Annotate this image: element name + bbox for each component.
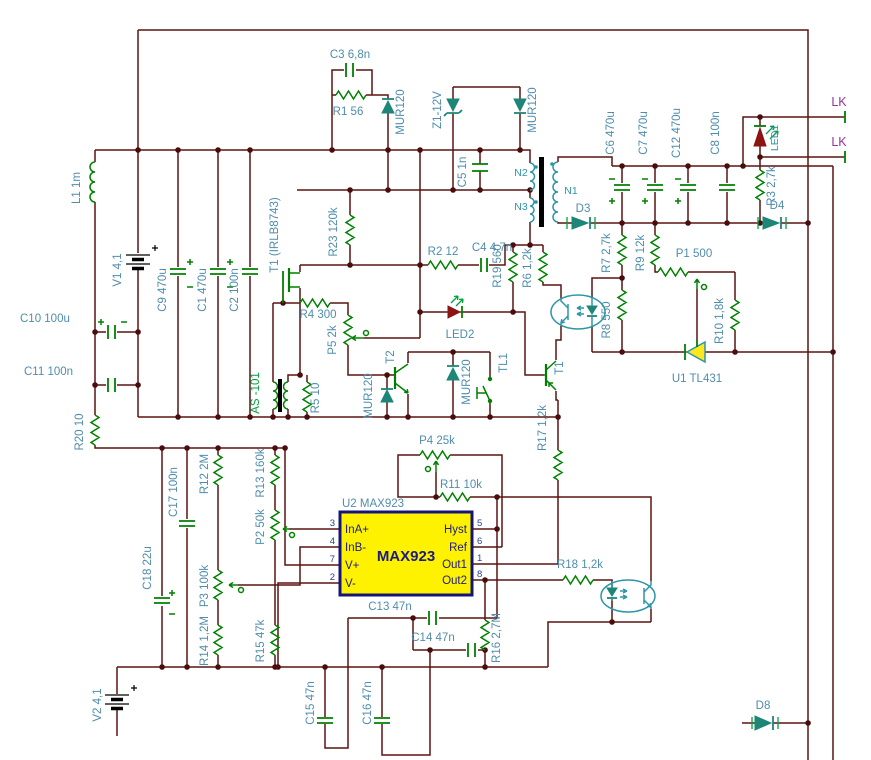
- label-r23: R23 120k: [328, 207, 340, 256]
- label-c13: C13 47n: [368, 601, 411, 613]
- pin-label-inb: InB-: [345, 542, 366, 554]
- label-c17: C17 100n: [168, 467, 180, 517]
- label-r8: R8 550: [601, 301, 613, 338]
- pin-number-8: 8: [477, 569, 482, 580]
- pin-number-4: 4: [330, 536, 335, 547]
- pin-label-hyst: Hyst: [444, 524, 468, 536]
- label-r18: R18 1,2k: [557, 559, 603, 571]
- label-r4: R4 300: [299, 309, 336, 321]
- label-p2: P2 50k: [255, 509, 267, 545]
- optocoupler-1: [551, 295, 605, 329]
- label-r20: R20 10: [74, 413, 86, 450]
- inductor-l1: [90, 162, 95, 202]
- label-c8: C8 100n: [710, 111, 722, 154]
- label-u1: U1 TL431: [672, 373, 722, 385]
- pin-label-ref: Ref: [449, 542, 468, 554]
- current-transformer-as101: [273, 379, 288, 412]
- label-c15: C15 47n: [305, 681, 317, 724]
- label-max923: MAX923: [377, 548, 435, 565]
- label-c1: C1 470u: [197, 268, 209, 311]
- label-v2: V2 4,1: [92, 688, 104, 721]
- label-led1: LED1: [769, 125, 781, 151]
- label-mur120-1: MUR120: [395, 89, 407, 134]
- as101-core: [278, 379, 282, 412]
- label-tl1: TL1: [498, 353, 510, 373]
- label-c7: C7 470u: [638, 111, 650, 154]
- diode-mur120-2: [514, 99, 526, 111]
- label-p5: P5 2k: [327, 325, 339, 355]
- diode-mur120-4: [447, 368, 459, 380]
- zener-z1: [447, 99, 459, 111]
- label-l1: L1 1m: [71, 172, 83, 204]
- label-c5: C5 1n: [457, 157, 469, 188]
- diode-mur120-1: [382, 101, 394, 113]
- label-r9: R9 12k: [635, 235, 647, 272]
- pin-number-5: 5: [477, 518, 482, 529]
- pin-number-1: 1: [477, 553, 482, 564]
- label-r2: R2 12: [428, 246, 459, 258]
- label-c11: C11 100n: [24, 366, 73, 378]
- pin-number-2: 2: [330, 572, 335, 583]
- transformer-n1-n2-n3: [530, 157, 558, 227]
- label-c14: C14 47n: [411, 632, 454, 644]
- pin-label-vplus: V+: [345, 560, 360, 572]
- label-n2: N2: [514, 167, 528, 179]
- label-d8: D8: [756, 700, 771, 712]
- label-r16: R16 2,7M: [491, 613, 503, 663]
- label-t2: T2: [385, 350, 397, 363]
- pin-label-vminus: V-: [345, 578, 356, 590]
- circuit-schematic: C3 6,8n R1 56 MUR120 Z1-12V MUR120 C5 1n…: [0, 0, 871, 760]
- pin-number-7: 7: [330, 554, 335, 565]
- label-led2: LED2: [446, 329, 475, 341]
- optocoupler-2: [601, 580, 655, 612]
- pin-number-6: 6: [477, 536, 482, 547]
- diode-d4: [763, 217, 779, 229]
- label-t1-mosfet: T1 (IRLB8743): [269, 197, 281, 273]
- label-p4: P4 25k: [419, 435, 455, 447]
- label-c18: C18 22u: [142, 546, 154, 589]
- label-as101: AS -101: [250, 372, 262, 414]
- mosfet-t1: [283, 268, 300, 303]
- pin-label-out1: Out1: [442, 559, 467, 571]
- led2: [448, 296, 463, 318]
- label-r19: R19 560: [492, 244, 504, 287]
- label-r13: R13 160k: [255, 448, 267, 497]
- label-v1: V1 4,1: [112, 253, 124, 286]
- label-c10: C10 100u: [20, 313, 70, 325]
- label-c3: C3 6,8n: [330, 49, 370, 61]
- label-r12: R12 2M: [199, 454, 211, 494]
- label-mur120-2: MUR120: [527, 87, 539, 132]
- diode-d8: [755, 716, 771, 730]
- transformer-core: [539, 157, 544, 227]
- battery-v2: [105, 685, 137, 709]
- label-n3: N3: [514, 201, 528, 213]
- label-t1-pnp: T1: [554, 361, 566, 374]
- label-r6: R6 1,2k: [522, 248, 534, 288]
- label-r11: R11 10k: [440, 479, 482, 491]
- label-c9: C9 470u: [157, 268, 169, 311]
- pin-label-out2: Out2: [442, 575, 467, 587]
- label-z1: Z1-12V: [432, 91, 444, 129]
- label-c2: C2 100n: [229, 268, 241, 311]
- label-r17: R17 1,2k: [537, 405, 549, 451]
- label-mur120-4: MUR120: [461, 359, 473, 404]
- label-r14: R14 1,2M: [199, 616, 211, 666]
- label-lk2: LK: [831, 135, 847, 149]
- pin-number-3: 3: [330, 518, 335, 529]
- label-r15: R15 47k: [255, 619, 267, 662]
- pushbutton-tl1: [477, 377, 492, 403]
- label-d3: D3: [576, 203, 591, 215]
- schematic-canvas: C3 6,8n R1 56 MUR120 Z1-12V MUR120 C5 1n…: [0, 0, 871, 760]
- label-d4: D4: [770, 200, 785, 212]
- label-n1: N1: [564, 185, 578, 197]
- label-mur120-3: MUR120: [363, 373, 375, 418]
- pin-label-ina: InA+: [345, 524, 369, 536]
- label-c16: C16 47n: [362, 681, 374, 724]
- label-r1: R1 56: [333, 106, 364, 118]
- label-u2: U2 MAX923: [342, 498, 404, 510]
- label-c6: C6 470u: [605, 111, 617, 154]
- transistor-t2: [395, 364, 408, 393]
- label-p3: P3 100k: [199, 565, 211, 607]
- shunt-regulator-tl431: [685, 340, 705, 362]
- label-c12: C12 470u: [671, 108, 683, 158]
- diode-mur120-3: [381, 390, 393, 402]
- diode-d3: [572, 217, 588, 229]
- label-r10: R10 1,8k: [714, 298, 726, 344]
- label-r7: R7 2,7k: [601, 233, 613, 273]
- label-p1: P1 500: [676, 248, 712, 260]
- battery-v1: [126, 245, 158, 269]
- label-lk1: LK: [831, 95, 847, 109]
- label-r5: R5 10: [310, 383, 322, 414]
